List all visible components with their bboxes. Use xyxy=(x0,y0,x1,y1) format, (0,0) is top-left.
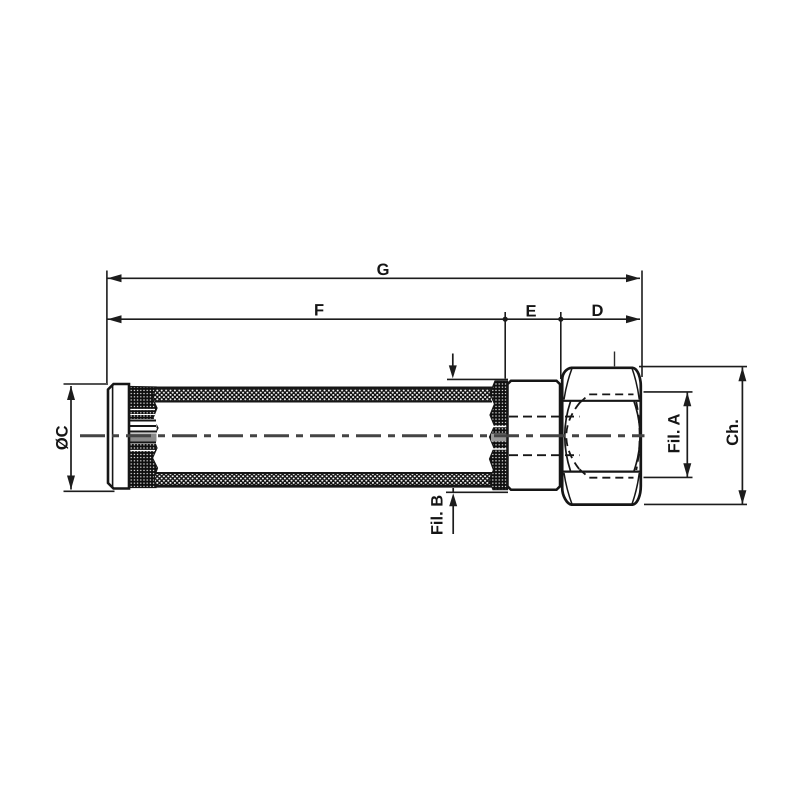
svg-text:D: D xyxy=(592,302,604,320)
svg-text:Ch.: Ch. xyxy=(724,419,742,446)
svg-text:G: G xyxy=(377,261,390,279)
svg-text:Fil. A: Fil. A xyxy=(666,414,684,454)
svg-text:F: F xyxy=(314,302,324,320)
svg-text:ØC: ØC xyxy=(53,425,71,450)
svg-text:E: E xyxy=(525,302,536,320)
svg-text:Fil. B: Fil. B xyxy=(428,495,446,535)
